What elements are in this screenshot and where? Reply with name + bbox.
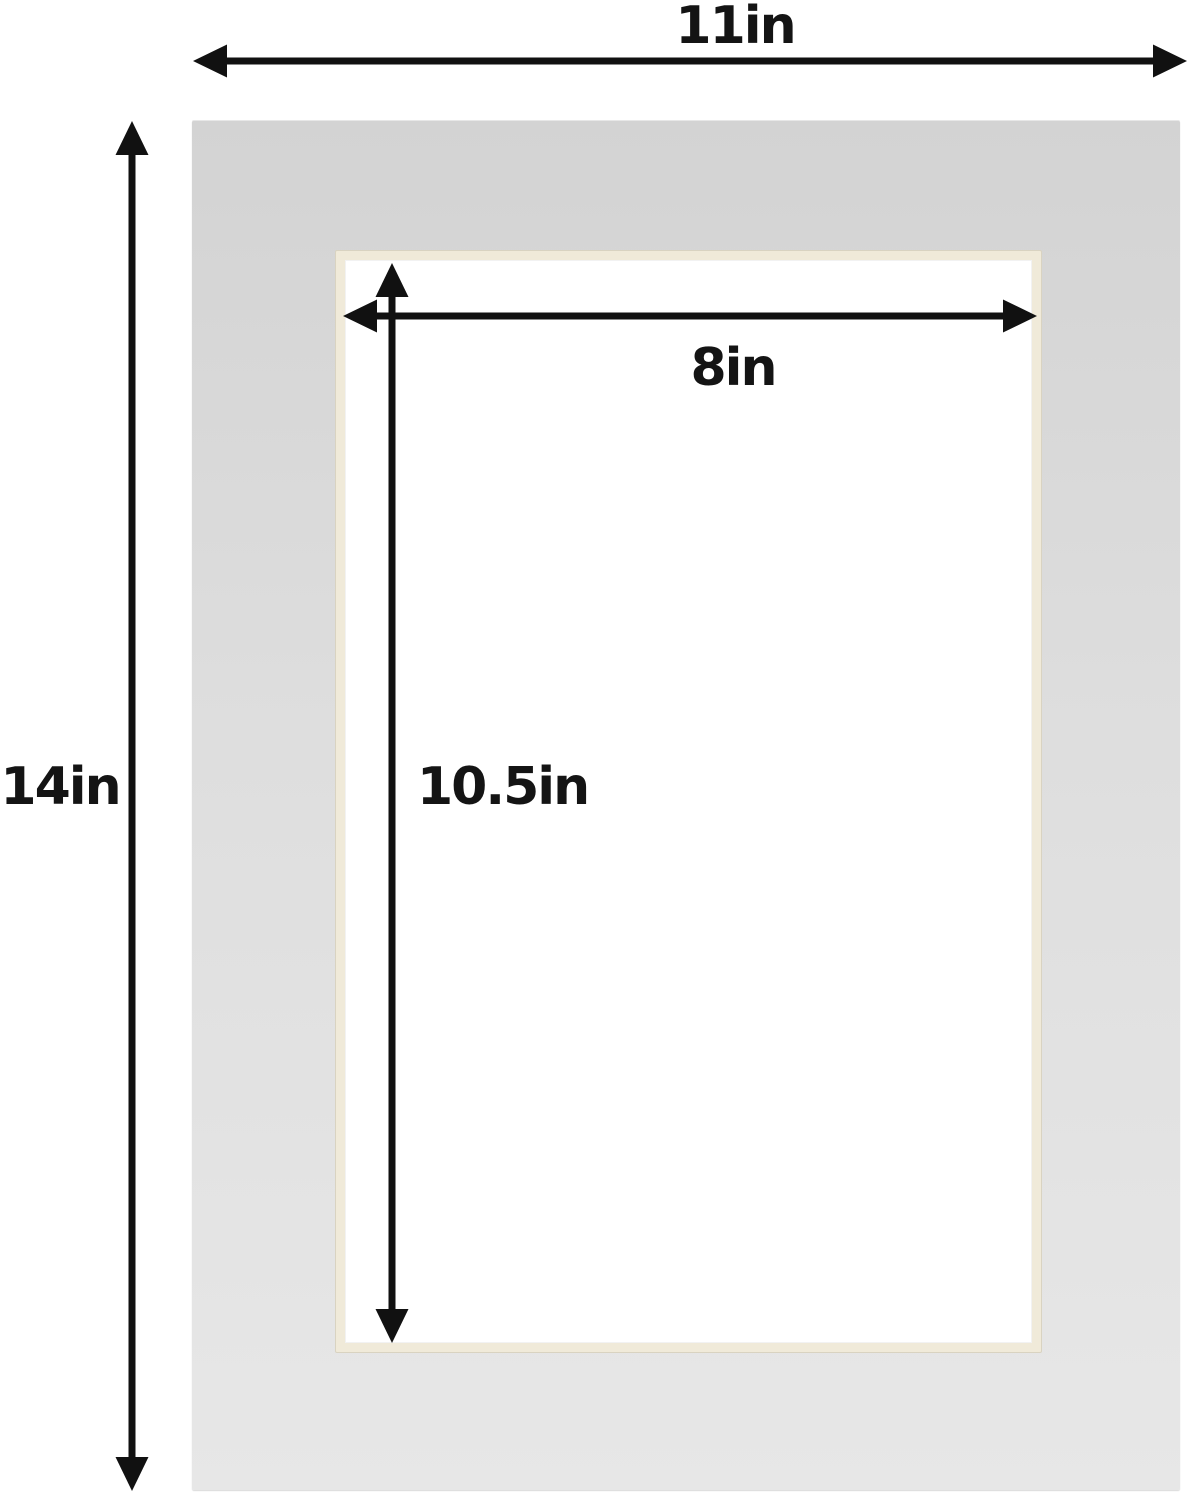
arrowhead-down xyxy=(116,1457,149,1491)
opening-width-label: 8in xyxy=(583,342,883,394)
arrowhead-right xyxy=(1003,300,1037,333)
dimension-arrows xyxy=(0,0,1197,1500)
outer-height-label: 14in xyxy=(0,761,126,813)
opening-height-label: 10.5in xyxy=(417,761,617,813)
arrowhead-down xyxy=(376,1309,409,1343)
opening-width-arrow xyxy=(343,300,1037,333)
opening-height-arrow xyxy=(376,263,409,1343)
arrowhead-up xyxy=(376,263,409,297)
dimension-diagram: 11in 14in 8in 10.5in xyxy=(0,0,1197,1500)
arrowhead-left xyxy=(193,45,227,78)
arrowhead-up xyxy=(116,121,149,155)
arrowhead-right xyxy=(1153,45,1187,78)
arrowhead-left xyxy=(343,300,377,333)
outer-width-label: 11in xyxy=(585,0,885,52)
